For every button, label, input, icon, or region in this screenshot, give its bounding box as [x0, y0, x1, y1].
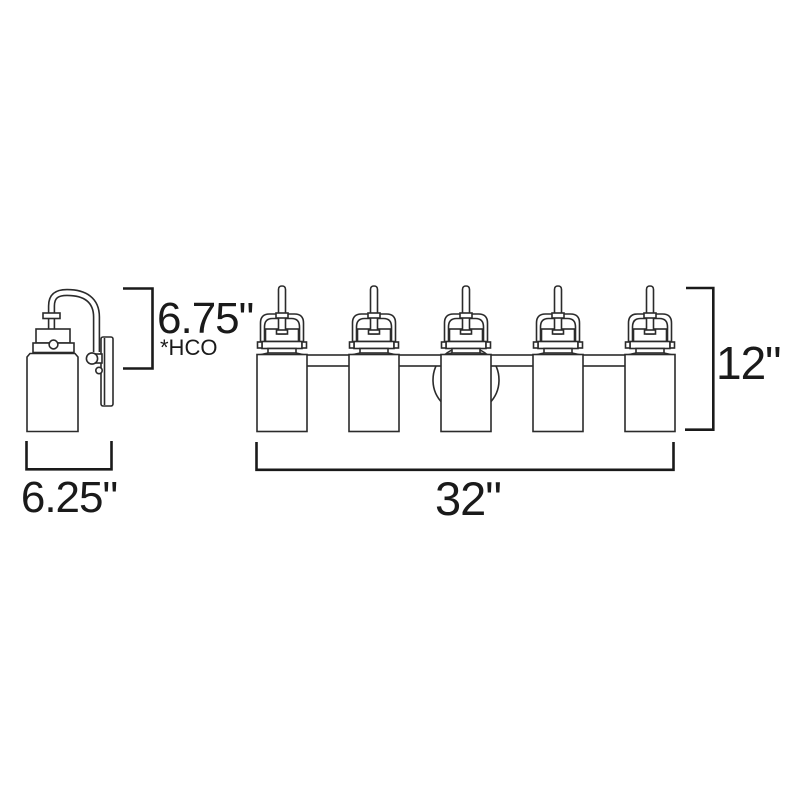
side-width-dimension: 6.25" [10, 476, 128, 520]
stem-flare [553, 330, 564, 334]
vanity-light-3 [441, 286, 491, 432]
stem-collar [460, 313, 472, 318]
vanity-light-5 [625, 286, 675, 432]
fitter-band [538, 342, 578, 349]
stem-collar [552, 313, 564, 318]
shade-neck [268, 349, 296, 354]
stem-collar [644, 313, 656, 318]
glass-shade [349, 355, 399, 432]
hco-note: *HCO [160, 337, 217, 359]
set-screw-left [258, 342, 263, 348]
fitter-band [446, 342, 486, 349]
vanity-light-4 [533, 286, 583, 432]
stem-flare [461, 330, 472, 334]
glass-shade [533, 355, 583, 432]
glass-shade [257, 355, 307, 432]
side-thumb-screw [49, 340, 58, 349]
stem-collar [276, 313, 288, 318]
set-screw-left [442, 342, 447, 348]
shade-neck [452, 349, 480, 354]
fitter-band [354, 342, 394, 349]
set-screw-right [486, 342, 491, 348]
stem-flare [369, 330, 380, 334]
stem-flare [277, 330, 288, 334]
arm-ball-joint [86, 353, 97, 364]
side-glass-shade [27, 354, 78, 432]
vanity-light-1 [257, 286, 307, 432]
front-width-dimension: 32" [403, 475, 533, 522]
stem [555, 286, 562, 334]
stem-flare [645, 330, 656, 334]
set-screw-left [350, 342, 355, 348]
glass-shade [625, 355, 675, 432]
set-screw-right [578, 342, 583, 348]
set-screw-right [394, 342, 399, 348]
bracket-front-width [257, 442, 674, 470]
bracket-side-height [123, 289, 153, 369]
bracket-side-width [27, 441, 112, 469]
set-screw-left [626, 342, 631, 348]
shade-neck [636, 349, 664, 354]
stem [647, 286, 654, 334]
stem [463, 286, 470, 334]
front-view-fixture [257, 286, 675, 432]
backplate-screw [96, 367, 102, 373]
front-height-dimension: 12" [716, 340, 781, 386]
shade-neck [544, 349, 572, 354]
fitter-band [262, 342, 302, 349]
stem [279, 286, 286, 334]
set-screw-left [534, 342, 539, 348]
line-drawing [0, 0, 800, 800]
glass-shade [441, 355, 491, 432]
side-stem-collar [43, 313, 60, 319]
shade-neck [360, 349, 388, 354]
stem [371, 286, 378, 334]
spec-sheet-diagram: 6.75" *HCO 6.25" 32" 12" [0, 0, 800, 800]
set-screw-right [670, 342, 675, 348]
set-screw-right [302, 342, 307, 348]
fitter-band [630, 342, 670, 349]
stem-collar [368, 313, 380, 318]
vanity-light-2 [349, 286, 399, 432]
side-view-sconce [27, 293, 113, 432]
bracket-front-height [685, 288, 713, 430]
